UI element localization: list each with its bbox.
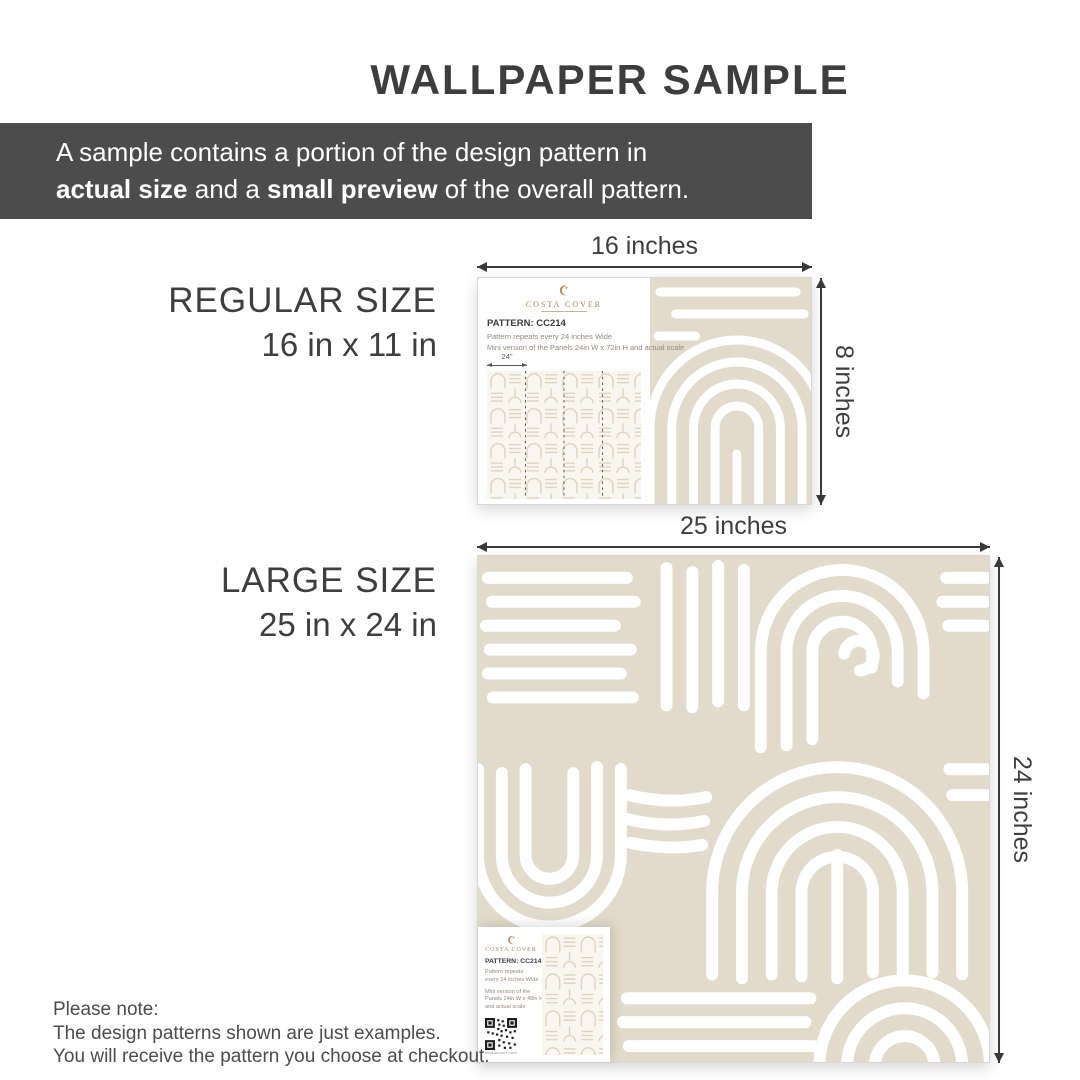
- banner-bold-small-preview: small preview: [267, 174, 438, 204]
- qr-caption: costacover.com: [485, 1050, 517, 1055]
- page-title: WALLPAPER SAMPLE: [140, 56, 1080, 104]
- brand-name: COSTA COVER: [478, 300, 650, 309]
- banner-text-mid: and a: [188, 174, 268, 204]
- brand-name: COSTA COVER: [485, 947, 537, 953]
- banner-text: A sample contains a portion of the desig…: [56, 137, 647, 167]
- regular-width-label: 16 inches: [477, 232, 812, 261]
- banner-text-line1: A sample contains a portion of the desig…: [56, 134, 812, 171]
- note-line2: The design patterns shown are just examp…: [53, 1022, 490, 1046]
- pattern-code: PATTERN: CC214: [487, 318, 650, 329]
- pattern-code: PATTERN: CC214: [485, 958, 537, 965]
- panel-width-arrow-icon: [487, 365, 527, 366]
- large-width-label: 25 inches: [477, 512, 990, 541]
- pattern-desc-line2: every 24 inches Wide: [485, 977, 537, 985]
- large-size-heading: LARGE SIZE 25 in x 24 in: [0, 561, 437, 644]
- note-line1: Please note:: [53, 998, 490, 1022]
- large-sample-image: COSTA COVER PATTERN: CC214 Pattern repea…: [477, 555, 990, 1063]
- wallpaper-sample-infographic: WALLPAPER SAMPLE A sample contains a por…: [0, 0, 1080, 1080]
- pattern-desc-line1: Pattern repeats: [485, 969, 537, 977]
- regular-height-label: 8 inches: [828, 278, 858, 505]
- pattern-desc-line5: and actual scale: [485, 1004, 537, 1012]
- pattern-desc-line4: Panels 24in W x 48in H: [485, 996, 537, 1004]
- brand-logo-icon: [505, 934, 518, 947]
- brand-logo: COSTA COVER: [485, 934, 537, 953]
- regular-pattern-svg: [650, 278, 811, 504]
- banner-text-line2: actual size and a small preview of the o…: [56, 171, 812, 208]
- mini-pattern-svg: [542, 934, 603, 1055]
- regular-width-arrow-icon: [477, 266, 812, 268]
- panel-width-label: 24": [487, 352, 527, 361]
- pattern-desc-line3: Mini version of the: [485, 989, 537, 997]
- large-height-arrow-icon: [998, 557, 1000, 1063]
- pattern-desc-group1: Pattern repeats every 24 inches Wide: [485, 969, 537, 985]
- footer-note: Please note: The design patterns shown a…: [53, 998, 490, 1069]
- large-height-label: 24 inches: [1006, 557, 1036, 1063]
- brand-rule-divider: [541, 311, 587, 312]
- regular-sample-image: COSTA COVER PATTERN: CC214 Pattern repea…: [477, 277, 812, 505]
- large-size-dimensions: 25 in x 24 in: [0, 606, 437, 644]
- qr-code: [485, 1018, 517, 1050]
- regular-sample-info-panel: COSTA COVER PATTERN: CC214 Pattern repea…: [478, 278, 650, 504]
- regular-size-name: REGULAR SIZE: [0, 281, 437, 321]
- large-card-text-column: COSTA COVER PATTERN: CC214 Pattern repea…: [485, 934, 537, 1055]
- regular-height-arrow-icon: [820, 278, 822, 505]
- regular-size-heading: REGULAR SIZE 16 in x 11 in: [0, 281, 437, 364]
- pattern-desc-group2: Mini version of the Panels 24in W x 48in…: [485, 989, 537, 1012]
- banner-bold-actual-size: actual size: [56, 174, 188, 204]
- banner-text-tail: of the overall pattern.: [438, 174, 689, 204]
- info-banner: A sample contains a portion of the desig…: [0, 123, 812, 219]
- pattern-desc-line1: Pattern repeats every 24 inches Wide: [487, 331, 650, 342]
- brand-logo-icon: [556, 283, 572, 299]
- mini-pattern-preview: [487, 371, 641, 499]
- large-width-arrow-icon: [477, 546, 990, 548]
- regular-actual-size-pattern: [650, 278, 811, 504]
- large-sample-info-card: COSTA COVER PATTERN: CC214 Pattern repea…: [478, 927, 610, 1062]
- note-line3: You will receive the pattern you choose …: [53, 1045, 490, 1069]
- brand-logo: COSTA COVER: [478, 278, 650, 312]
- mini-pattern-svg: [487, 371, 641, 499]
- mini-pattern-preview: [542, 934, 603, 1055]
- large-size-name: LARGE SIZE: [0, 561, 437, 601]
- regular-size-dimensions: 16 in x 11 in: [0, 326, 437, 364]
